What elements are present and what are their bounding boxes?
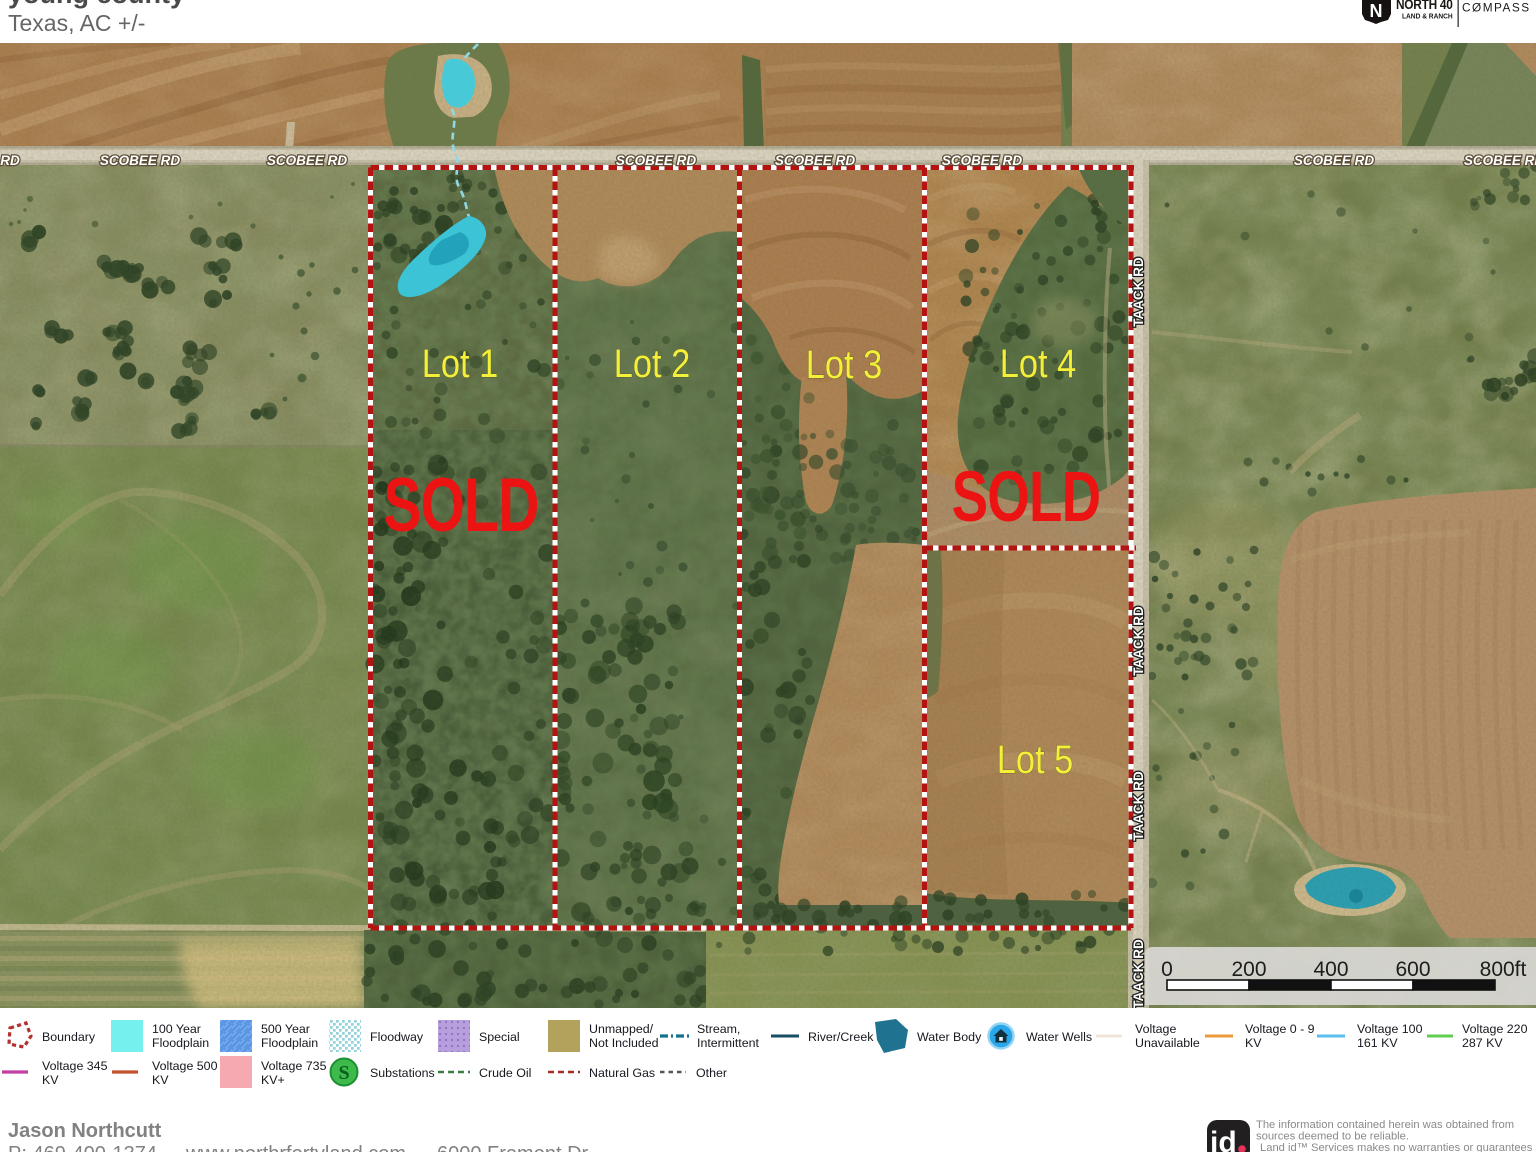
svg-text:200: 200 bbox=[1231, 958, 1266, 981]
svg-text:SCOBEE RD: SCOBEE RD bbox=[1464, 153, 1536, 168]
svg-text:SCOBEE RD: SCOBEE RD bbox=[267, 153, 348, 168]
svg-text:id: id bbox=[1210, 1126, 1237, 1152]
svg-text:Voltage 735: Voltage 735 bbox=[261, 1059, 327, 1073]
svg-text:Lot 2: Lot 2 bbox=[614, 341, 690, 386]
svg-text:CØMPASS: CØMPASS bbox=[1462, 1, 1531, 15]
svg-text:KV: KV bbox=[1245, 1036, 1262, 1050]
svg-text:Unavailable: Unavailable bbox=[1135, 1036, 1200, 1050]
svg-text:Lot 5: Lot 5 bbox=[997, 737, 1073, 782]
svg-text:Floodway: Floodway bbox=[370, 1030, 424, 1044]
svg-text:Voltage 100: Voltage 100 bbox=[1357, 1022, 1423, 1036]
svg-text:Voltage 220: Voltage 220 bbox=[1462, 1022, 1528, 1036]
svg-text:Lot 3: Lot 3 bbox=[806, 342, 882, 387]
svg-text:Stream,: Stream, bbox=[697, 1022, 740, 1036]
svg-text:Intermittent: Intermittent bbox=[697, 1036, 760, 1050]
svg-text:Land id™ Services makes no wa: Land id™ Services makes no warranties or… bbox=[1260, 1142, 1533, 1152]
svg-text:SCOBEE RD: SCOBEE RD bbox=[616, 153, 697, 168]
svg-text:400: 400 bbox=[1313, 958, 1348, 981]
svg-text:Jason Northcutt: Jason Northcutt bbox=[8, 1120, 162, 1142]
svg-text:Crude Oil: Crude Oil bbox=[479, 1066, 531, 1080]
svg-text:100 Year: 100 Year bbox=[152, 1022, 201, 1036]
svg-text:N: N bbox=[1370, 1, 1383, 21]
svg-text:The information contained here: The information contained herein was obt… bbox=[1256, 1119, 1514, 1131]
svg-text:Voltage 0 - 9: Voltage 0 - 9 bbox=[1245, 1022, 1315, 1036]
svg-text:TAACK RD: TAACK RD bbox=[1131, 771, 1146, 841]
svg-text:RD: RD bbox=[0, 153, 20, 168]
svg-text:KV: KV bbox=[152, 1073, 169, 1087]
svg-text:6000 Fremont Dr: 6000 Fremont Dr bbox=[437, 1143, 589, 1152]
svg-text:www.northrfortyland.com: www.northrfortyland.com bbox=[185, 1143, 406, 1152]
svg-text:Boundary: Boundary bbox=[42, 1030, 96, 1044]
svg-text:SCOBEE RD: SCOBEE RD bbox=[942, 153, 1023, 168]
svg-text:Voltage 345: Voltage 345 bbox=[42, 1059, 108, 1073]
svg-text:Lot 1: Lot 1 bbox=[422, 341, 498, 386]
svg-text:Water Wells: Water Wells bbox=[1026, 1030, 1092, 1044]
svg-text:500 Year: 500 Year bbox=[261, 1022, 310, 1036]
svg-text:Water Body: Water Body bbox=[917, 1030, 982, 1044]
svg-text:P: 469-400-1374: P: 469-400-1374 bbox=[8, 1143, 157, 1152]
svg-text:Floodplain: Floodplain bbox=[152, 1036, 209, 1050]
svg-text:S: S bbox=[338, 1062, 349, 1084]
svg-text:Substations: Substations bbox=[370, 1066, 435, 1080]
svg-text:Voltage 500: Voltage 500 bbox=[152, 1059, 218, 1073]
svg-text:KV+: KV+ bbox=[261, 1073, 285, 1087]
svg-text:TAACK RD: TAACK RD bbox=[1131, 939, 1146, 1009]
svg-text:TAACK RD: TAACK RD bbox=[1131, 257, 1146, 327]
svg-text:young county: young county bbox=[8, 0, 185, 9]
svg-text:LAND & RANCH: LAND & RANCH bbox=[1402, 13, 1453, 20]
svg-text:SOLD: SOLD bbox=[383, 463, 538, 548]
svg-text:Special: Special bbox=[479, 1030, 520, 1044]
svg-text:Other: Other bbox=[696, 1066, 727, 1080]
svg-text:Not Included: Not Included bbox=[589, 1036, 659, 1050]
svg-text:Voltage: Voltage bbox=[1135, 1022, 1176, 1036]
svg-text:TAACK RD: TAACK RD bbox=[1131, 606, 1146, 676]
svg-text:NORTH 40: NORTH 40 bbox=[1396, 0, 1453, 12]
svg-text:0: 0 bbox=[1161, 958, 1173, 981]
svg-text:Texas, AC +/-: Texas, AC +/- bbox=[8, 10, 145, 36]
svg-text:SCOBEE RD: SCOBEE RD bbox=[100, 153, 181, 168]
svg-text:600: 600 bbox=[1395, 958, 1430, 981]
svg-text:KV: KV bbox=[42, 1073, 59, 1087]
svg-text:287 KV: 287 KV bbox=[1462, 1036, 1503, 1050]
svg-text:Lot 4: Lot 4 bbox=[1000, 341, 1076, 386]
svg-text:River/Creek: River/Creek bbox=[808, 1030, 874, 1044]
svg-text:800ft: 800ft bbox=[1480, 958, 1527, 981]
svg-text:SCOBEE RD: SCOBEE RD bbox=[1294, 153, 1375, 168]
svg-text:Natural Gas: Natural Gas bbox=[589, 1066, 655, 1080]
svg-text:Unmapped/: Unmapped/ bbox=[589, 1022, 654, 1036]
svg-text:161 KV: 161 KV bbox=[1357, 1036, 1398, 1050]
svg-text:SOLD: SOLD bbox=[952, 458, 1101, 536]
svg-text:sources deemed to be reliable.: sources deemed to be reliable. bbox=[1256, 1131, 1409, 1143]
svg-text:Floodplain: Floodplain bbox=[261, 1036, 318, 1050]
svg-text:SCOBEE RD: SCOBEE RD bbox=[775, 153, 856, 168]
